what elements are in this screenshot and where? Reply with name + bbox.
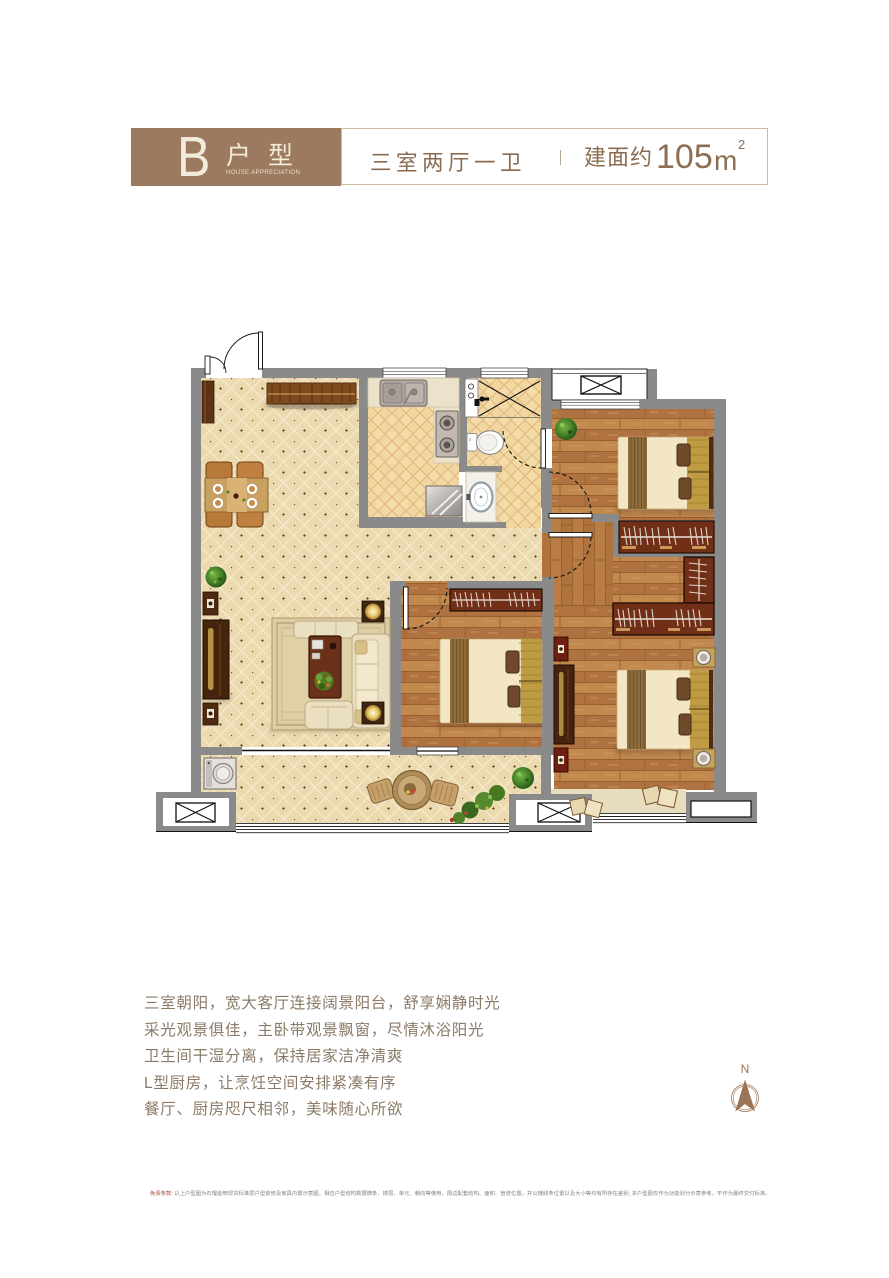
svg-text:N: N bbox=[741, 1062, 750, 1076]
